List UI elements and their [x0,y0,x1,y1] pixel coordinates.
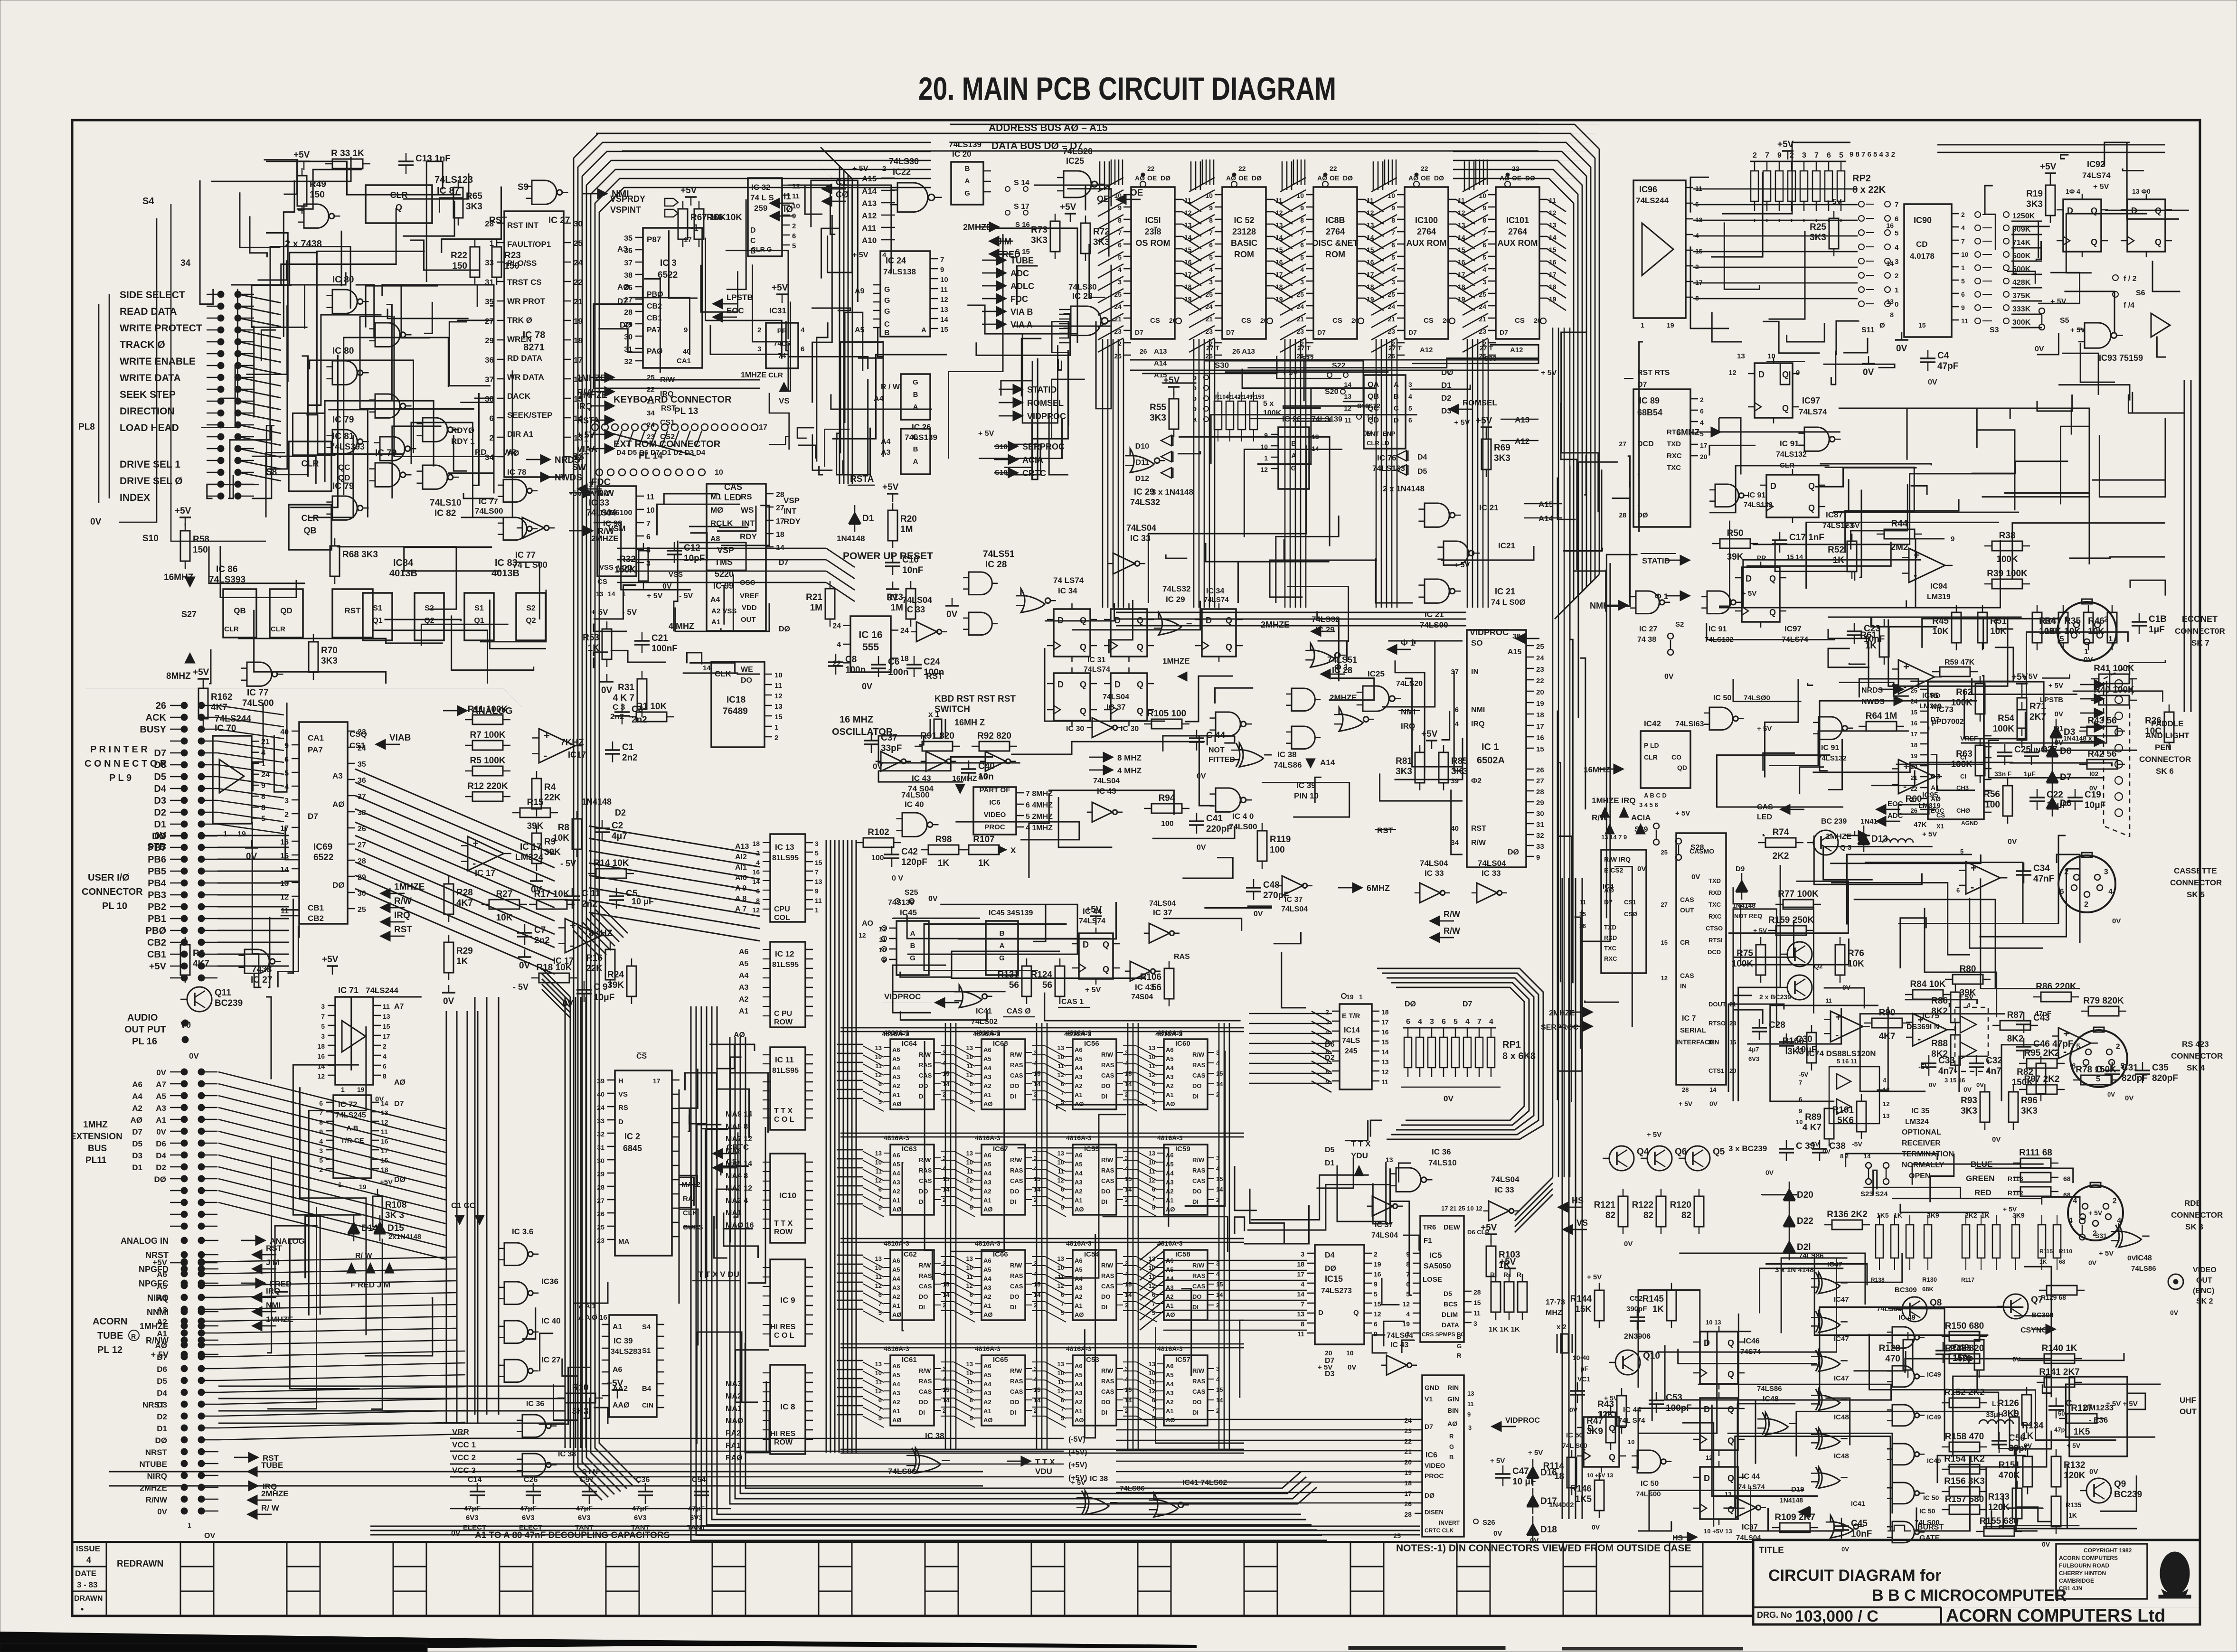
svg-text:24: 24 [900,627,909,635]
svg-text:A2: A2 [157,1317,167,1326]
svg-text:DO: DO [919,1293,928,1300]
svg-text:MØ: MØ [710,506,723,515]
svg-text:IC41: IC41 [976,1007,992,1015]
svg-text:T T X: T T X [774,1220,793,1228]
svg-text:DØ: DØ [1525,174,1535,182]
svg-text:150: 150 [504,261,519,271]
svg-text:ECONET: ECONET [2182,614,2218,624]
svg-text:A2: A2 [892,1293,900,1300]
svg-text:IC 3.6: IC 3.6 [512,1227,533,1236]
svg-text:IC 16: IC 16 [859,629,882,640]
svg-text:F1: F1 [1424,1237,1432,1245]
svg-text:17: 17 [1536,723,1544,731]
svg-text:A3: A3 [892,1073,900,1080]
svg-text:74LS04: 74LS04 [1093,777,1120,785]
svg-text:74LS04: 74LS04 [1149,900,1176,908]
svg-text:A4: A4 [892,1380,900,1388]
svg-text:2764: 2764 [1417,227,1436,236]
svg-text:26 A13: 26 A13 [1232,347,1255,356]
svg-text:74LS74: 74LS74 [1799,407,1827,416]
svg-text:CRS SPMPS PO: CRS SPMPS PO [1422,1331,1465,1338]
svg-text:13: 13 [383,1013,390,1020]
svg-text:25: 25 [1536,643,1544,651]
svg-text:RAS: RAS [1192,1272,1206,1279]
svg-text:D: D [618,1118,623,1126]
svg-text:A5: A5 [892,1055,900,1062]
svg-text:3K3: 3K3 [1396,767,1412,777]
svg-text:C37: C37 [881,733,897,743]
svg-text:4816A-3: 4816A-3 [1066,1029,1092,1036]
svg-text:A6: A6 [892,1046,900,1053]
svg-text:VDD: VDD [742,604,757,612]
svg-text:+5V: +5V [193,667,209,677]
svg-text:Q: Q [1103,965,1109,974]
svg-text:D1: D1 [862,514,874,524]
svg-text:IC 33: IC 33 [1130,534,1151,543]
svg-text:BIN: BIN [1447,1407,1459,1414]
svg-text:A5: A5 [1166,1266,1174,1273]
svg-text:V1: V1 [1425,1395,1433,1403]
svg-text:4: 4 [1489,1018,1493,1026]
svg-text:QD: QD [1368,416,1379,424]
svg-text:25: 25 [358,906,366,914]
svg-text:3K3: 3K3 [1031,235,1048,245]
svg-text:D2: D2 [154,807,166,818]
svg-text:26: 26 [597,1210,604,1218]
svg-text:VSP: VSP [717,545,734,555]
svg-text:5: 5 [2060,635,2064,643]
svg-text:A6: A6 [132,1080,142,1089]
svg-text:CS: CS [1424,317,1434,325]
svg-text:A1: A1 [892,1302,900,1309]
svg-text:5: 5 [792,242,796,250]
svg-text:+5V: +5V [1777,140,1794,150]
svg-text:4816A-3: 4816A-3 [884,1134,909,1142]
svg-text:VCC 1: VCC 1 [452,1440,476,1449]
svg-text:G: G [1457,1342,1462,1350]
svg-text:RA1: RA1 [726,1442,741,1450]
svg-text:IC63: IC63 [902,1145,917,1153]
svg-text:CS: CS [1241,317,1251,325]
svg-text:A2: A2 [1075,1399,1083,1406]
svg-text:A6: A6 [1075,1046,1083,1053]
svg-text:27: 27 [485,317,494,326]
svg-text:74LS139: 74LS139 [1312,415,1342,423]
svg-text:IC 30: IC 30 [1066,725,1084,733]
svg-text:A1: A1 [1166,1302,1174,1309]
svg-text:11: 11 [1961,317,1968,325]
svg-text:DO: DO [1192,1399,1202,1406]
svg-text:DI: DI [1192,1093,1199,1100]
svg-text:A2: A2 [892,1188,900,1195]
svg-text:20: 20 [1700,453,1708,460]
svg-text:14: 14 [1216,1080,1223,1088]
svg-text:IC59: IC59 [1175,1145,1190,1153]
svg-text:R59 47K: R59 47K [1944,658,1975,666]
svg-text:IC 37: IC 37 [1153,908,1172,917]
svg-text:Q: Q [1137,706,1143,716]
svg-text:0V: 0V [1664,673,1674,681]
svg-text:LPSTB: LPSTB [727,293,753,302]
svg-text:R7 100K: R7 100K [470,730,506,740]
svg-text:Φ 1: Φ 1 [1401,638,1415,648]
svg-text:10: 10 [1346,1349,1354,1357]
svg-text:4816A-3: 4816A-3 [1157,1029,1183,1036]
svg-text:15: 15 [1911,709,1917,716]
svg-text:R92 820: R92 820 [977,731,1011,741]
svg-text:DO: DO [1101,1188,1111,1195]
svg-text:100n: 100n [888,667,908,677]
svg-text:VS: VS [779,396,790,405]
svg-text:IC5I: IC5I [1145,216,1161,225]
svg-text:S1: S1 [474,604,484,612]
svg-text:C 3: C 3 [613,703,625,712]
svg-text:16: 16 [752,868,760,876]
svg-text:AØ: AØ [617,282,630,291]
svg-text:b: b [1192,374,1197,382]
svg-text:+ 5V: + 5V [1675,809,1690,817]
svg-text:A1: A1 [156,1116,166,1125]
svg-text:DI: DI [1101,1304,1107,1311]
svg-text:VSPINT: VSPINT [610,205,641,215]
svg-text:S 14: S 14 [1014,179,1029,187]
svg-text:100K: 100K [1993,724,2015,734]
svg-text:10: 10 [792,202,800,210]
svg-text:T T X V DU: T T X V DU [698,1270,739,1279]
svg-text:SERPROC: SERPROC [1022,442,1065,451]
svg-text:18: 18 [574,336,583,345]
svg-text:IC41 74LS02: IC41 74LS02 [1182,1479,1227,1487]
svg-text:11: 11 [646,493,654,501]
svg-text:CAS 1: CAS 1 [1061,998,1084,1006]
svg-text:76489: 76489 [723,706,748,716]
svg-text:5: 5 [1700,430,1704,438]
svg-text:3K3: 3K3 [321,656,338,666]
svg-text:G: G [884,308,890,316]
svg-text:DØ: DØ [779,625,790,633]
svg-text:1N4002: 1N4002 [1549,1501,1574,1509]
svg-text:TITLE: TITLE [1759,1546,1784,1556]
svg-text:+ 5V: + 5V [591,608,608,617]
svg-text:6: 6 [1700,407,1704,415]
svg-text:4 K 7: 4 K 7 [613,693,634,703]
svg-text:VIAB: VIAB [389,733,411,743]
svg-text:Q: Q [1080,642,1086,652]
svg-text:100n: 100n [845,665,866,675]
svg-text:24: 24 [647,421,655,429]
svg-text:C1 CO: C1 CO [451,1201,476,1210]
svg-text:37: 37 [624,259,632,267]
svg-text:C8: C8 [845,655,857,665]
svg-text:IC53: IC53 [1084,1356,1099,1364]
svg-text:C24: C24 [924,657,940,667]
svg-text:24: 24 [1536,654,1544,662]
svg-text:1: 1 [341,1086,345,1093]
svg-text:GND: GND [1425,1384,1439,1391]
svg-text:DO: DO [1010,1082,1019,1089]
svg-text:NMI: NMI [1471,706,1485,714]
svg-text:VIA A: VIA A [1010,320,1033,329]
svg-text:26: 26 [1911,807,1917,814]
svg-text:DATE: DATE [75,1569,96,1578]
svg-text:CHØ: CHØ [1956,807,1970,814]
svg-text:INT: INT [742,519,755,528]
svg-text:0V: 0V [1197,844,1206,852]
svg-text:CB2: CB2 [308,914,324,923]
svg-text:14: 14 [317,1062,325,1070]
svg-text:100: 100 [1161,820,1174,828]
svg-text:IC 78: IC 78 [507,468,527,477]
svg-text:12: 12 [1381,1068,1389,1076]
svg-text:D: D [1083,940,1089,949]
svg-text:1M: 1M [891,603,903,613]
svg-text:74LS04: 74LS04 [1491,1175,1520,1184]
svg-text:A3: A3 [881,449,891,457]
svg-text:68B54: 68B54 [1637,408,1662,417]
svg-text:R/W: R/W [1010,1262,1022,1269]
svg-text:D5: D5 [1417,468,1427,476]
svg-text:D7: D7 [154,748,166,759]
svg-text:A4: A4 [1166,1380,1174,1388]
svg-text:11: 11 [815,897,822,904]
svg-text:A4: A4 [983,1170,991,1177]
svg-text:22: 22 [647,385,655,394]
svg-text:•: • [81,1605,84,1614]
svg-text:IC10: IC10 [779,1191,796,1200]
svg-text:S25: S25 [905,889,918,897]
svg-text:A1: A1 [711,618,720,626]
svg-text:0V: 0V [2008,838,2017,846]
svg-text:IC 27: IC 27 [1639,625,1657,633]
svg-text:D3: D3 [1441,406,1452,415]
svg-text:10K: 10K [553,833,569,843]
svg-text:2: 2 [1325,1008,1329,1016]
svg-text:IC 33: IC 33 [1425,869,1444,878]
svg-text:VDU: VDU [1035,1467,1052,1476]
svg-text:WR: WR [1931,703,1942,711]
svg-text:IC 33: IC 33 [589,498,609,507]
svg-text:5: 5 [1408,404,1412,412]
svg-text:QB: QB [234,606,246,615]
svg-text:DØ: DØ [1161,174,1170,182]
svg-text:375K: 375K [2012,292,2031,300]
svg-text:39K: 39K [544,847,561,857]
svg-text:16MHZ: 16MHZ [164,573,194,582]
svg-text:3K3: 3K3 [1494,453,1510,463]
svg-text:ACORN COMPUTERS: ACORN COMPUTERS [2059,1555,2118,1561]
svg-text:I1: I1 [783,192,791,202]
svg-text:1N4148: 1N4148 [582,797,612,807]
svg-text:3: 3 [1473,1320,1477,1327]
svg-text:IC 12: IC 12 [775,949,794,958]
svg-text:14: 14 [1344,381,1351,388]
svg-text:13: 13 [966,1255,973,1262]
svg-text:RAS: RAS [1010,1272,1023,1279]
svg-text:A1: A1 [892,1197,900,1204]
svg-text:7: 7 [1814,151,1819,160]
svg-text:2: 2 [756,849,760,857]
svg-text:DI: DI [1010,1304,1016,1311]
svg-text:IC64: IC64 [902,1040,917,1048]
svg-text:+5V: +5V [149,961,167,972]
svg-text:12: 12 [1374,1310,1381,1318]
svg-text:SEEK/STEP: SEEK/STEP [507,411,552,420]
svg-text:NRST: NRST [142,1400,165,1409]
svg-text:23: 23 [647,433,655,441]
svg-text:39K: 39K [607,980,624,990]
svg-text:IC 40: IC 40 [541,1316,561,1325]
svg-text:IC67: IC67 [993,1145,1008,1153]
svg-text:A6: A6 [1166,1152,1174,1159]
svg-text:IC 36: IC 36 [526,1400,544,1408]
svg-text:B: B [1449,1454,1454,1461]
svg-text:IC55: IC55 [1084,1145,1099,1153]
svg-text:A3: A3 [983,1179,991,1186]
svg-text:D6: D6 [156,1139,166,1148]
svg-text:A6: A6 [978,772,987,780]
svg-text:6: 6 [1408,416,1412,424]
svg-text:16: 16 [1381,1028,1389,1036]
svg-text:R105 100: R105 100 [1147,709,1186,719]
svg-text:2 x 7438: 2 x 7438 [285,239,322,249]
svg-text:12: 12 [940,296,948,304]
svg-text:R102: R102 [868,827,889,837]
svg-text:AØ: AØ [983,1206,993,1213]
svg-text:74S04: 74S04 [1131,993,1153,1001]
svg-text:13: 13 [1297,1310,1304,1318]
svg-text:33pF: 33pF [881,743,902,753]
svg-text:RST: RST [1471,825,1486,833]
svg-text:+5V: +5V [152,1258,167,1267]
svg-text:IC 43: IC 43 [1390,1341,1408,1349]
svg-text:12: 12 [1260,466,1268,473]
svg-text:IC 17: IC 17 [475,868,495,878]
svg-text:MA4 8: MA4 8 [726,1172,748,1180]
svg-text:103,000 / C: 103,000 / C [1795,1607,1878,1625]
svg-text:-: - [544,750,547,761]
svg-text:D7: D7 [1135,329,1143,336]
svg-text:R21: R21 [806,592,822,602]
svg-text:ANALOG IN: ANALOG IN [121,1236,169,1246]
svg-text:0V: 0V [1530,1537,1539,1545]
svg-text:ACORN: ACORN [93,1316,127,1327]
svg-text:25: 25 [1393,1532,1401,1539]
svg-text:Q: Q [2091,237,2097,247]
svg-text:DO: DO [1010,1399,1019,1406]
svg-text:LM319: LM319 [1927,593,1951,601]
svg-text:A4: A4 [1166,1064,1174,1071]
svg-text:A1: A1 [983,1408,991,1415]
svg-text:74LS74: 74LS74 [1204,596,1229,604]
svg-text:SA5050: SA5050 [1424,1262,1451,1270]
svg-text:R98: R98 [935,835,952,845]
svg-text:+ 5V: + 5V [1490,1457,1505,1465]
svg-text:11: 11 [774,682,782,690]
svg-text:A3: A3 [1166,1179,1174,1186]
svg-text:1K 1K 1K: 1K 1K 1K [1489,1325,1520,1333]
svg-text:X: X [1010,846,1016,855]
svg-text:S4: S4 [642,1323,651,1331]
svg-text:CLR LD: CLR LD [1367,440,1389,447]
svg-text:PB6: PB6 [148,854,166,865]
svg-text:39: 39 [597,1077,604,1085]
svg-text:A9: A9 [855,287,865,295]
svg-text:CAS: CAS [1192,1072,1206,1079]
svg-text:2: 2 [1700,396,1704,404]
svg-text:19: 19 [1667,321,1674,329]
svg-text:RD DATA: RD DATA [507,354,542,363]
svg-text:D7: D7 [1500,329,1508,336]
svg-text:RAS: RAS [1010,1378,1023,1385]
svg-text:G: G [1449,1443,1454,1450]
svg-text:RDY: RDY [740,532,757,541]
svg-text:0V: 0V [1197,772,1206,780]
svg-text:A3: A3 [739,984,749,992]
svg-text:A15: A15 [1508,648,1521,656]
svg-text:R/W: R/W [1192,1156,1205,1164]
svg-text:6: 6 [1374,1320,1378,1328]
svg-text:RS: RS [618,1104,628,1112]
svg-text:+5V: +5V [322,955,339,965]
svg-text:D7: D7 [1226,329,1235,336]
svg-text:6845: 6845 [623,1144,642,1153]
svg-text:R106: R106 [1140,972,1161,982]
svg-text:6V3: 6V3 [634,1514,647,1522]
svg-text:A1: A1 [892,1091,900,1098]
svg-text:D: D [1114,616,1121,625]
svg-text:22: 22 [1536,677,1544,685]
svg-text:4: 4 [1418,1018,1422,1026]
svg-text:IC17: IC17 [568,750,586,760]
svg-text:1: 1 [1895,286,1898,294]
svg-text:IC 37: IC 37 [1106,703,1126,712]
svg-text:A2: A2 [1075,1293,1083,1300]
svg-text:74LS02: 74LS02 [971,1018,998,1026]
svg-text:6: 6 [1961,291,1965,298]
svg-text:24: 24 [832,622,841,630]
svg-text:IC 33: IC 33 [905,605,925,614]
svg-text:3K3: 3K3 [1810,233,1826,243]
svg-text:13: 13 [1344,393,1351,400]
svg-text:714K: 714K [2012,239,2031,247]
svg-text:QB: QB [1368,393,1379,401]
svg-text:A6: A6 [1166,1362,1174,1370]
svg-text:NWDS: NWDS [1861,698,1885,706]
svg-text:+ 5V: + 5V [1528,1449,1543,1457]
svg-text:15: 15 [383,1023,390,1030]
svg-text:S1: S1 [373,604,382,612]
svg-text:A1: A1 [983,1302,991,1309]
svg-text:CB2: CB2 [147,938,166,948]
svg-text:18: 18 [1536,711,1544,719]
svg-text:RAS: RAS [919,1272,932,1279]
svg-text:RAS: RAS [919,1378,932,1385]
svg-text:47K: 47K [1914,821,1927,829]
svg-text:P L 9: P L 9 [109,773,132,783]
svg-text:PART OF: PART OF [980,786,1010,794]
svg-text:PROC: PROC [984,823,1005,831]
svg-text:VS: VS [618,1090,628,1098]
svg-text:NWDS: NWDS [555,473,582,483]
svg-text:5: 5 [1374,1290,1378,1298]
svg-text:BASIC: BASIC [1231,238,1257,248]
svg-text:b: b [1192,394,1197,403]
svg-text:DØ: DØ [1508,848,1519,856]
svg-text:VREF: VREF [740,592,759,600]
svg-text:20: 20 [1325,1349,1332,1357]
svg-text:OE: OE [1330,174,1339,182]
svg-text:MA8 8: MA8 8 [726,1123,748,1131]
